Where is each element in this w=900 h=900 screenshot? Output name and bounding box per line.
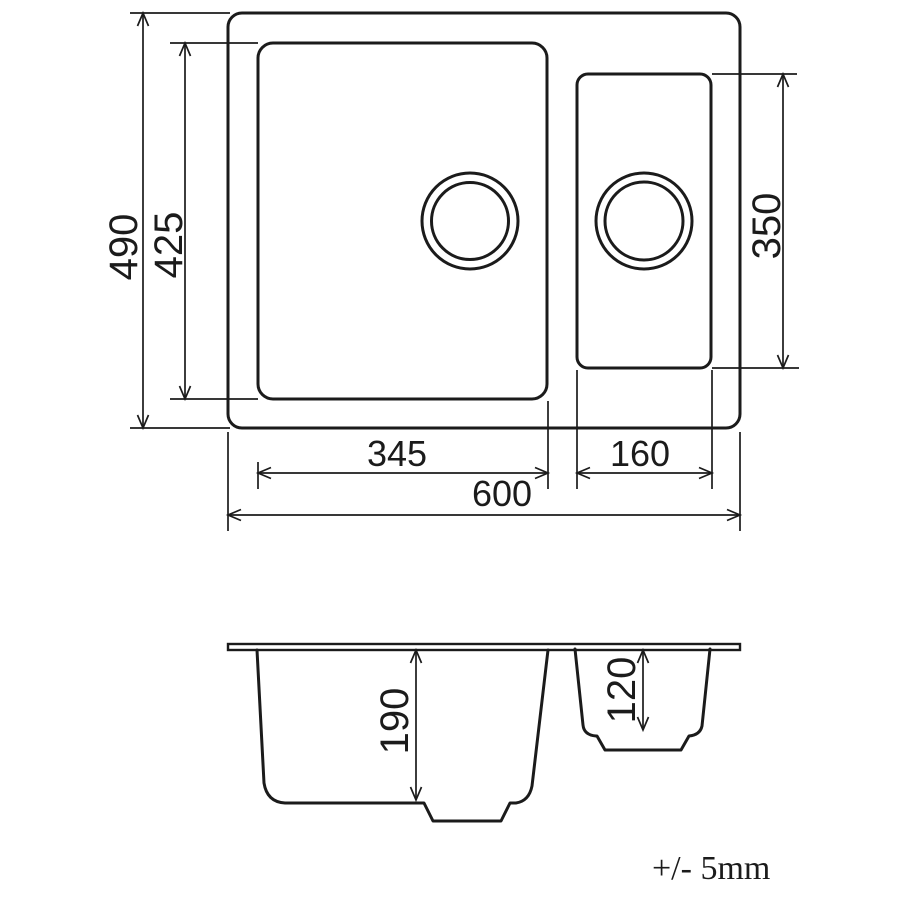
dim-label-overall-depth: 490 xyxy=(102,214,146,281)
dim-main-bowl-width: 345 xyxy=(258,433,548,474)
tolerance-note: +/- 5mm xyxy=(652,850,770,887)
dim-label-main-bowl-depth: 425 xyxy=(147,212,191,279)
dim-half-bowl-width: 160 xyxy=(577,433,712,474)
main-drain-icon xyxy=(422,173,518,269)
main-bowl-outline xyxy=(258,43,547,399)
sink-dimension-drawing: 490 425 350 345 160 xyxy=(0,0,900,900)
dim-label-half-bowl-width: 160 xyxy=(610,433,670,474)
dim-overall-depth: 490 xyxy=(102,13,146,428)
dim-label-main-bowl-width: 345 xyxy=(367,433,427,474)
dim-overall-width: 600 xyxy=(228,473,740,515)
dim-label-overall-width: 600 xyxy=(472,473,532,514)
dim-label-half-bowl-depth: 350 xyxy=(745,193,789,260)
dim-label-main-bowl-height: 190 xyxy=(373,688,417,755)
dim-half-bowl-height: 120 xyxy=(600,650,644,730)
dim-main-bowl-height: 190 xyxy=(373,650,417,800)
section-view: 190 120 xyxy=(228,644,740,821)
dim-half-bowl-depth: 350 xyxy=(745,74,789,368)
top-view: 490 425 350 345 160 xyxy=(102,13,799,531)
extension-lines-plan xyxy=(130,13,799,531)
dim-main-bowl-depth: 425 xyxy=(147,43,191,399)
half-drain-icon xyxy=(596,173,692,269)
rim-section-outline xyxy=(228,644,740,650)
drawing-svg: 490 425 350 345 160 xyxy=(0,0,900,900)
dim-label-half-bowl-height: 120 xyxy=(600,657,644,724)
